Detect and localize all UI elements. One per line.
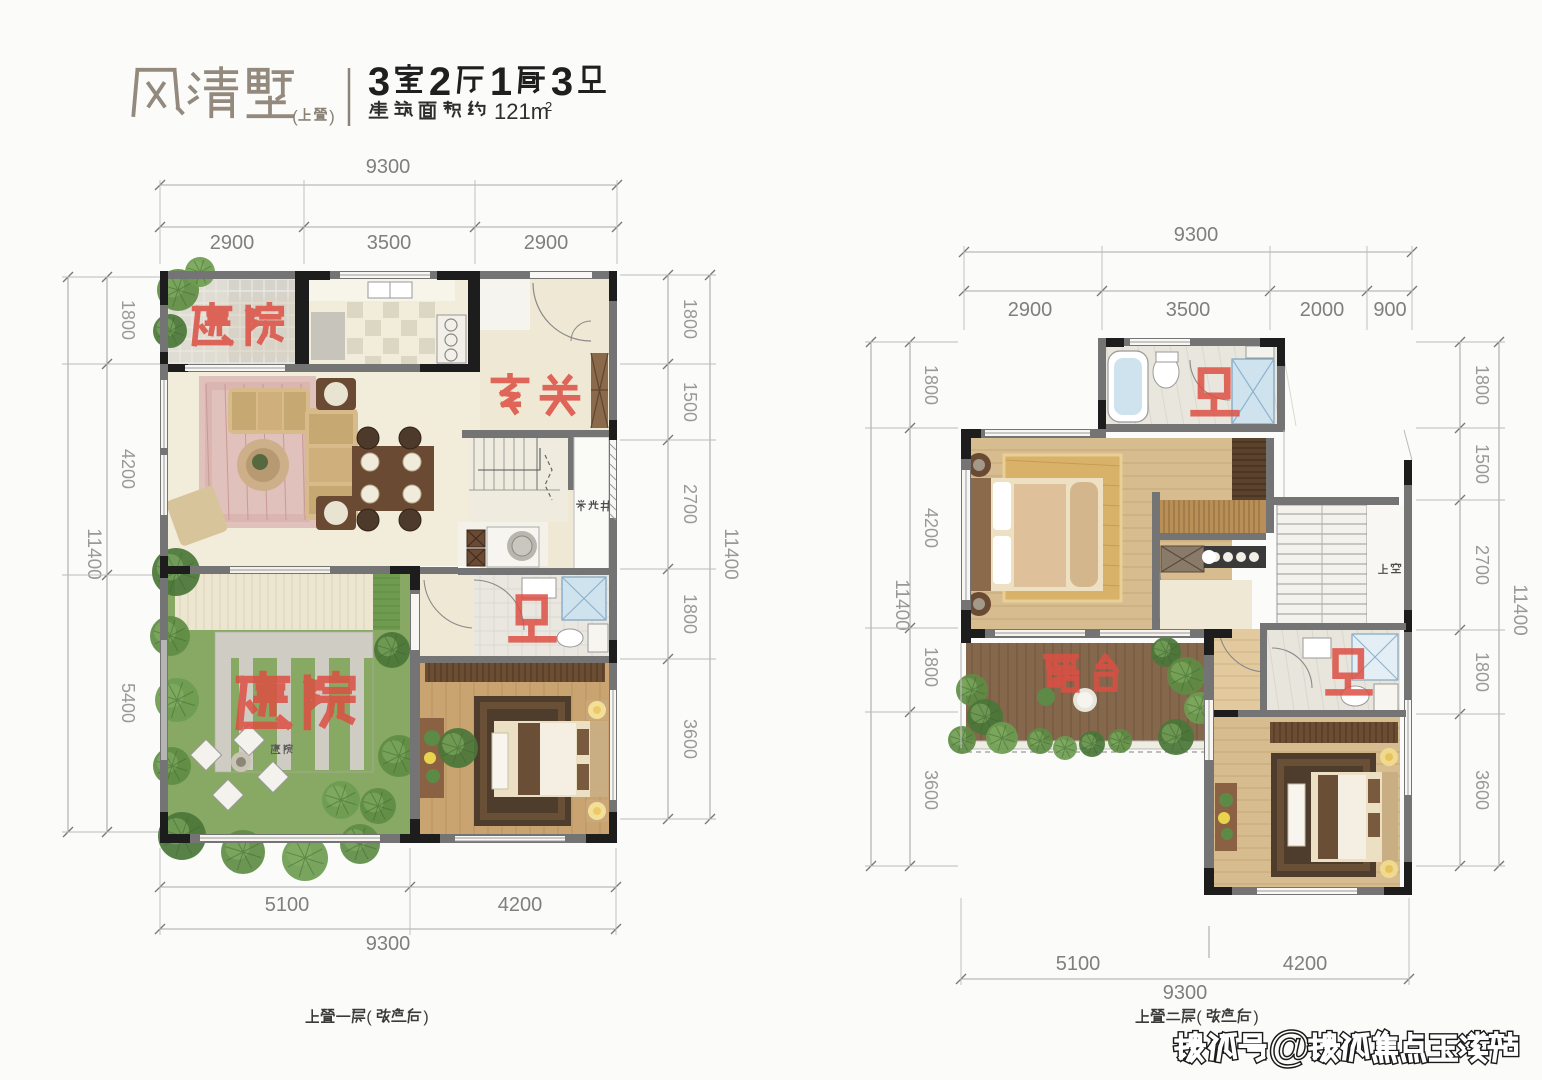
svg-text:2900: 2900 xyxy=(210,232,255,254)
svg-text:3600: 3600 xyxy=(921,770,941,810)
svg-text:1800: 1800 xyxy=(921,365,941,405)
svg-text:4200: 4200 xyxy=(921,508,941,548)
svg-text:9300: 9300 xyxy=(366,156,411,178)
svg-text:2900: 2900 xyxy=(524,232,569,254)
svg-text:1800: 1800 xyxy=(1472,652,1492,692)
svg-text:): ) xyxy=(423,1009,428,1026)
svg-text:3: 3 xyxy=(551,60,573,104)
svg-text:3600: 3600 xyxy=(1472,770,1492,810)
svg-text:1800: 1800 xyxy=(921,647,941,687)
svg-text:5400: 5400 xyxy=(118,683,138,723)
svg-text:3500: 3500 xyxy=(367,232,412,254)
svg-text:): ) xyxy=(1253,1009,1258,1026)
svg-text:11400: 11400 xyxy=(720,528,741,579)
svg-text:1800: 1800 xyxy=(1472,365,1492,405)
svg-text:1800: 1800 xyxy=(680,299,700,339)
svg-text:5100: 5100 xyxy=(265,894,310,916)
svg-text:1800: 1800 xyxy=(680,594,700,634)
svg-text:121m: 121m xyxy=(494,99,549,124)
svg-text:11400: 11400 xyxy=(1509,584,1530,635)
svg-text:1: 1 xyxy=(490,60,512,104)
svg-text:2700: 2700 xyxy=(680,484,700,524)
svg-text:11400: 11400 xyxy=(83,528,104,579)
svg-text:900: 900 xyxy=(1373,299,1406,321)
svg-text:9300: 9300 xyxy=(1174,224,1219,246)
svg-text:2000: 2000 xyxy=(1300,299,1345,321)
svg-text:4200: 4200 xyxy=(118,449,138,489)
svg-text:3: 3 xyxy=(368,60,390,104)
svg-text:3500: 3500 xyxy=(1166,299,1211,321)
svg-text:2: 2 xyxy=(429,60,451,104)
svg-text:(: ( xyxy=(1196,1009,1202,1026)
svg-text:1800: 1800 xyxy=(118,300,138,340)
svg-text:(: ( xyxy=(292,107,298,126)
svg-text:1500: 1500 xyxy=(680,382,700,422)
svg-text:5100: 5100 xyxy=(1056,953,1101,975)
svg-text:): ) xyxy=(329,107,335,126)
svg-text:(: ( xyxy=(366,1009,372,1026)
svg-text:9300: 9300 xyxy=(1163,982,1208,1004)
svg-text:@: @ xyxy=(1268,1022,1311,1071)
svg-text:4200: 4200 xyxy=(1283,953,1328,975)
svg-text:1500: 1500 xyxy=(1472,444,1492,484)
svg-text:4200: 4200 xyxy=(498,894,543,916)
svg-text:2: 2 xyxy=(545,99,552,114)
svg-text:2900: 2900 xyxy=(1008,299,1053,321)
svg-text:11400: 11400 xyxy=(891,579,912,630)
svg-text:3600: 3600 xyxy=(680,719,700,759)
svg-text:2700: 2700 xyxy=(1472,545,1492,585)
svg-text:9300: 9300 xyxy=(366,933,411,955)
